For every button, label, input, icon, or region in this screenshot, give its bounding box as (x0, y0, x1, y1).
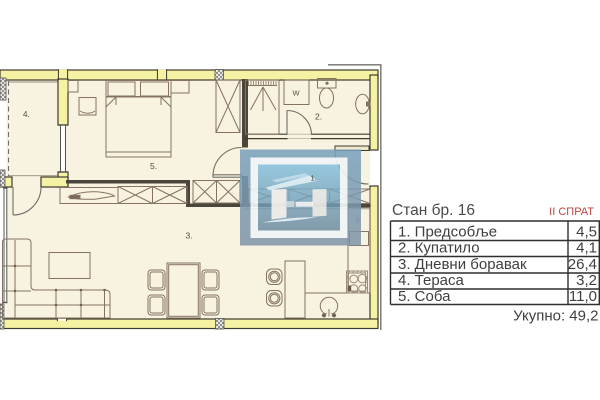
svg-text:II СПРАТ: II СПРАТ (549, 206, 594, 218)
svg-text:1. Предсобље: 1. Предсобље (398, 224, 497, 241)
svg-text:4. Тераса: 4. Тераса (398, 272, 465, 289)
svg-text:3,2: 3,2 (576, 272, 597, 289)
svg-text:5.: 5. (150, 161, 157, 171)
svg-text:4,1: 4,1 (576, 240, 597, 257)
svg-text:4.: 4. (23, 110, 30, 119)
svg-text:2.: 2. (315, 112, 322, 122)
svg-text:3.: 3. (186, 231, 193, 241)
svg-text:11,0: 11,0 (569, 288, 597, 305)
svg-text:Стан бр. 16: Стан бр. 16 (392, 202, 475, 219)
svg-text:3. Дневни боравак: 3. Дневни боравак (398, 256, 527, 273)
svg-text:W: W (293, 89, 301, 98)
svg-text:4,5: 4,5 (576, 224, 597, 241)
svg-text:26,4: 26,4 (568, 256, 597, 273)
svg-text:1.: 1. (311, 174, 317, 183)
svg-text:2. Купатило: 2. Купатило (398, 240, 480, 257)
svg-text:5. Соба: 5. Соба (398, 288, 451, 305)
svg-text:Укупно: 49,2: Укупно: 49,2 (513, 308, 598, 325)
